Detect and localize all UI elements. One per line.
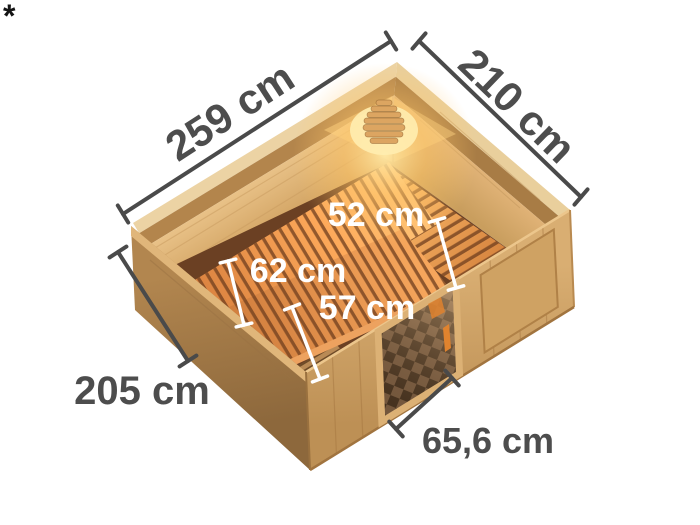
left-side-label: 205 cm [74, 369, 210, 413]
sauna-dimension-diagram: 52 cm 62 cm 57 cm 259 cm 210 cm 205 cm 6… [0, 0, 700, 525]
front-bench-depth-label: 57 cm [319, 289, 415, 327]
main-bench-depth-label: 62 cm [250, 252, 346, 290]
door-width-label: 65,6 cm [422, 420, 554, 461]
side-bench-depth-label: 52 cm [328, 196, 424, 234]
sauna-illustration: 52 cm 62 cm 57 cm 259 cm 210 cm 205 cm 6… [0, 0, 700, 525]
footnote-asterisk: * [3, 0, 16, 34]
